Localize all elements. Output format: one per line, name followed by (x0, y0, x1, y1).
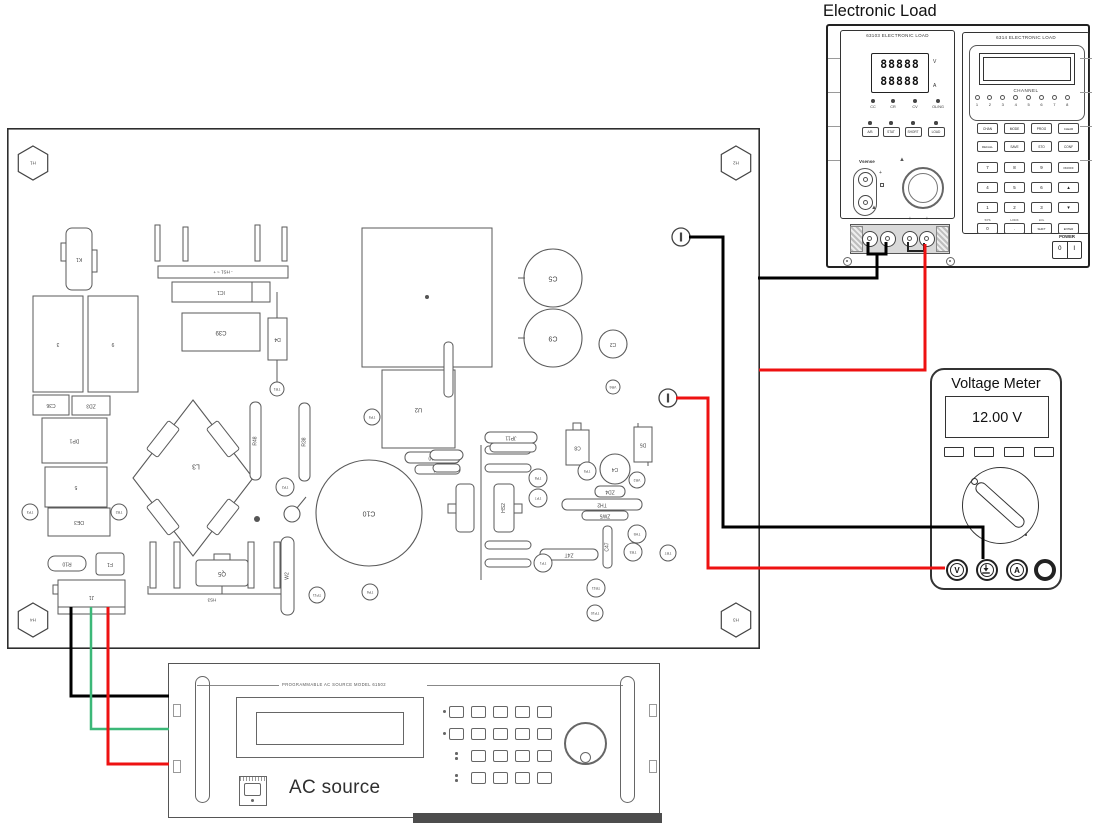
ac-connector-icon (239, 776, 267, 806)
load-terminal-3[interactable] (902, 231, 918, 247)
rack-notch (173, 760, 181, 773)
ac-indicator-dot (455, 779, 458, 782)
load-seven-seg-display: 88888 88888 (871, 53, 929, 93)
meter-jack-spare[interactable] (1034, 559, 1056, 581)
silkscreen-label: R38 (302, 437, 308, 446)
pcb-component (58, 607, 125, 614)
terminal-screw-icon (907, 236, 912, 241)
silkscreen-label: R10 (62, 561, 71, 567)
ac-key-0-0[interactable] (449, 706, 464, 718)
silkscreen-label: TP2 (282, 485, 288, 489)
module-63103-model: 63103 ELECTRONIC LOAD (841, 33, 954, 38)
shift-label: SYS (977, 218, 998, 222)
pcb-component (255, 225, 260, 261)
load-key-chan[interactable]: CHAN (977, 123, 998, 134)
load-btn-stat[interactable]: STAT (883, 127, 900, 137)
ac-source-label: AC source (289, 777, 380, 799)
meter-function-button-4[interactable] (1034, 447, 1054, 457)
load-key-[interactable]: ▲ (1058, 182, 1079, 193)
load-key-3[interactable]: 3 (1031, 202, 1052, 213)
silkscreen-label: C8 (574, 445, 581, 451)
mode-led-ol/ng (936, 99, 940, 103)
silkscreen-label: ZW5 (600, 513, 611, 519)
chassis-line (1080, 92, 1092, 93)
shift-label: LCL (1031, 218, 1052, 222)
pcb-component (448, 504, 456, 513)
silkscreen-label: D4 (274, 336, 281, 342)
ac-key-0-2[interactable] (493, 706, 508, 718)
silkscreen-label: TP9 (369, 415, 375, 419)
silkscreen-label: C2 (610, 341, 617, 347)
load-key-2[interactable]: 2 (1004, 202, 1025, 213)
load-key-0[interactable]: 0 (977, 223, 998, 234)
silkscreen-label: DE3 (74, 519, 84, 525)
load-power-switch[interactable]: 0 I (1052, 241, 1082, 259)
pcb-component (174, 542, 180, 588)
ac-key-3-1[interactable] (471, 772, 486, 784)
pcb-component (485, 559, 531, 567)
load-display-line2: 88888 (872, 73, 928, 90)
chassis-line (1080, 126, 1092, 127)
meter-function-button-1[interactable] (944, 447, 964, 457)
silkscreen-label: ZD4 (605, 489, 615, 495)
silkscreen-label: DP1 (69, 438, 79, 444)
ac-key-1-1[interactable] (471, 728, 486, 740)
ac-key-2-3[interactable] (515, 750, 530, 762)
load-btn-load[interactable]: LOAD (928, 127, 945, 137)
silkscreen-label: TR11 (592, 586, 600, 590)
silkscreen-label: TR7 (665, 551, 672, 555)
vsense-jack-minus[interactable] (858, 195, 873, 210)
jack-glyph: A (1014, 566, 1020, 575)
connector-inlet (244, 783, 261, 796)
pcb-component (485, 464, 531, 472)
silkscreen-label: C39 (215, 329, 227, 335)
ac-key-led (443, 732, 446, 735)
load-terminal-4[interactable] (919, 231, 935, 247)
ac-key-1-4[interactable] (537, 728, 552, 740)
silkscreen-label: TP10 (591, 611, 599, 615)
display-unit-amps: A (933, 83, 936, 89)
pcb-component (274, 542, 280, 588)
silkscreen-label: TP5 (584, 469, 590, 473)
vsense-jack-plus[interactable] (858, 172, 873, 187)
silkscreen-label: L3 (192, 463, 200, 470)
load-terminal-1[interactable] (862, 231, 878, 247)
terminal-screw-icon (867, 236, 872, 241)
silkscreen-label: JP11 (505, 435, 516, 441)
ac-indicator-dot (455, 757, 458, 760)
pcb-component (155, 225, 160, 261)
dial-index-dot (971, 478, 978, 485)
load-key-5[interactable]: 5 (1004, 182, 1025, 193)
shift-label: LOCK (1004, 218, 1025, 222)
terminal-block-tab (936, 226, 949, 252)
chassis-line (828, 58, 840, 59)
terminal-mark: − (883, 216, 893, 222)
jack-inner: V (950, 563, 964, 577)
ac-key-1-2[interactable] (493, 728, 508, 740)
ac-source: PROGRAMMABLE AC SOURCE MODEL 61502 AC so… (168, 663, 660, 818)
pcb-component (485, 541, 531, 549)
pcb-component (282, 227, 287, 261)
mode-led-label: CR (881, 105, 905, 109)
ac-key-led (443, 710, 446, 713)
pcb-component (53, 585, 58, 594)
load-key-prog[interactable]: PROG (1031, 123, 1052, 134)
load-rotary-knob[interactable] (902, 167, 944, 209)
connector-pin (251, 799, 254, 802)
jack-inner: A (1010, 563, 1024, 577)
silkscreen-label: C10 (362, 510, 375, 517)
pcb-component (514, 504, 522, 513)
silkscreen-label: C4 (612, 466, 619, 472)
meter-function-button-2[interactable] (974, 447, 994, 457)
silkscreen-label: TP6 (367, 590, 373, 594)
header-rule (427, 685, 623, 686)
ac-source-model-text: PROGRAMMABLE AC SOURCE MODEL 61502 (282, 682, 386, 687)
silkscreen-label: TR3 (630, 550, 637, 554)
terminal-mark: − (865, 216, 875, 222)
display-unit-volts: V (933, 59, 936, 65)
pcb-component (92, 250, 97, 272)
pcb-component (490, 443, 536, 452)
pcb-component (433, 464, 460, 472)
meter-range-dial[interactable] (962, 467, 1039, 544)
ac-indicator-dot (455, 774, 458, 777)
knob-inner (908, 173, 938, 203)
silkscreen-label: D5 (640, 442, 647, 448)
mode-led-label: CV (903, 105, 927, 109)
knob-dimple (580, 752, 591, 763)
electronic-load-title: Electronic Load (823, 2, 937, 21)
load-key-conf[interactable]: CONF (1058, 141, 1079, 152)
silkscreen-label: TH5 (634, 532, 641, 536)
silkscreen-label: IC1 (217, 289, 225, 295)
ac-indicator-dot (455, 752, 458, 755)
silkscreen-label: H3 (733, 618, 739, 623)
pcb-component (444, 342, 453, 397)
load-key-recall[interactable]: RECALL (977, 141, 998, 152)
ac-key-0-4[interactable] (537, 706, 552, 718)
silkscreen-label: U2 (414, 406, 422, 412)
electronic-load: 63103 ELECTRONIC LOAD 88888 88888 V A Vs… (826, 24, 1090, 268)
load-key-7[interactable]: 7 (977, 162, 998, 173)
silkscreen-label: C36 (46, 402, 55, 408)
terminal-screw-icon (885, 236, 890, 241)
button-led (868, 121, 872, 125)
silkscreen-label: TP8 (535, 476, 541, 480)
silkscreen-label: Z4T (565, 552, 574, 558)
load-display-line1: 88888 (872, 56, 928, 73)
power-off-position: 0 (1053, 242, 1068, 258)
load-key-6[interactable]: 6 (1031, 182, 1052, 193)
square-mark-icon (880, 183, 884, 187)
chassis-line (1080, 58, 1092, 59)
load-terminal-2[interactable] (880, 231, 896, 247)
mode-led-cv (913, 99, 917, 103)
pcb-component (456, 484, 474, 532)
meter-jack-v[interactable]: V (946, 559, 968, 581)
jack-inner (980, 563, 994, 577)
chassis-line (1080, 160, 1092, 161)
chassis-screw-icon (843, 257, 852, 266)
ac-key-2-4[interactable] (537, 750, 552, 762)
silkscreen-label: H1 (30, 161, 36, 166)
rack-handle[interactable] (620, 676, 635, 803)
silkscreen-label: TR2 (116, 510, 123, 514)
meter-jack-a[interactable]: A (1006, 559, 1028, 581)
silkscreen-label: K1 (76, 256, 82, 262)
vsense-label: Vsense (859, 159, 875, 164)
silkscreen-label: TP7 (535, 496, 541, 500)
load-key-1[interactable]: 1 (977, 202, 998, 213)
load-key-shift[interactable]: SHIFT (1031, 223, 1052, 234)
silkscreen-label: R48 (253, 436, 259, 445)
meter-jack-gnd[interactable] (976, 559, 998, 581)
silkscreen-label: HS2 (501, 503, 507, 513)
load-key-8[interactable]: 8 (1004, 162, 1025, 173)
ac-key-3-2[interactable] (493, 772, 508, 784)
ac-key-1-0[interactable] (449, 728, 464, 740)
meter-function-button-3[interactable] (1004, 447, 1024, 457)
pcb-component (183, 227, 188, 261)
silkscreen-label: 3 (56, 341, 59, 347)
silkscreen-label: TP3 (27, 510, 33, 514)
ac-key-2-2[interactable] (493, 750, 508, 762)
ac-key-1-3[interactable] (515, 728, 530, 740)
silkscreen-label: TP1 (540, 561, 546, 565)
load-key-sto[interactable]: STO (1031, 141, 1052, 152)
ac-key-0-1[interactable] (471, 706, 486, 718)
dial-rim-dot (1025, 534, 1028, 537)
ac-key-2-1[interactable] (471, 750, 486, 762)
load-btn-ab[interactable]: A/B (862, 127, 879, 137)
mode-led-cr (891, 99, 895, 103)
pcb-component (573, 423, 581, 430)
silkscreen-label: 9 (111, 341, 114, 347)
silkscreen-label: VR2 (634, 478, 641, 482)
pcb-component (248, 542, 254, 588)
silkscreen-label: ZD3 (86, 403, 96, 409)
pcb-dot (425, 295, 429, 299)
silkscreen-label: TP11 (313, 593, 321, 597)
diagram-canvas: H1H2H3H4K139C36ZD3DP15DE3TP3TR2R10F1J1- … (0, 0, 1100, 829)
silkscreen-label: - HS1 ~ + (213, 270, 233, 275)
voltage-meter-display: 12.00 V (945, 396, 1049, 438)
silkscreen-label: C5 (548, 275, 557, 282)
silkscreen-label: F1 (107, 561, 113, 567)
jack-glyph: V (954, 566, 959, 575)
rack-notch (649, 760, 657, 773)
terminal-mark: + (922, 216, 932, 222)
button-led (934, 121, 938, 125)
silkscreen-label: W2 (285, 572, 291, 580)
load-key-9[interactable]: 9 (1031, 162, 1052, 173)
mode-led-label: OL/NG (926, 105, 950, 109)
chassis-line (828, 92, 840, 93)
button-led (911, 121, 915, 125)
load-key-enter[interactable]: ENTER (1058, 223, 1079, 234)
terminal-mark: + (905, 216, 915, 222)
mode-led-cc (871, 99, 875, 103)
load-mainframe-6314: 6314 ELECTRONIC LOAD CHANNEL 12345678 CH… (962, 32, 1090, 234)
silkscreen-label: H2 (733, 161, 739, 166)
silkscreen-label: H4 (30, 618, 36, 623)
ac-lcd (256, 712, 404, 745)
pcb-component (430, 450, 463, 460)
silkscreen-label: HS3 (207, 598, 216, 603)
terminal-screw-icon (924, 236, 929, 241)
ac-key-3-4[interactable] (537, 772, 552, 784)
dial-pointer (972, 479, 1026, 529)
mainframe-keypad: CHANMODEPROGCLEARRECALLSAVESTOCONF789ON/… (963, 33, 1089, 233)
power-label: POWER (1050, 234, 1084, 239)
button-led (889, 121, 893, 125)
connector-hatch (240, 777, 266, 781)
ac-source-shadow-band (413, 813, 662, 823)
load-key-[interactable]: ▼ (1058, 202, 1079, 213)
pcb-component (61, 243, 66, 261)
jack-center (863, 200, 868, 205)
silkscreen-label: TR1 (274, 387, 281, 391)
rack-handle[interactable] (195, 676, 210, 803)
pcb-component (284, 506, 300, 522)
load-key-onoff[interactable]: ON/OFF (1058, 162, 1079, 173)
ground-icon (981, 564, 991, 574)
jack-center (863, 177, 868, 182)
ac-key-0-3[interactable] (515, 706, 530, 718)
silkscreen-label: C47 (605, 542, 611, 551)
chassis-screw-icon (946, 257, 955, 266)
silkscreen-label: Q5 (217, 570, 226, 576)
load-btn-short[interactable]: SHORT (905, 127, 922, 137)
rack-notch (173, 704, 181, 717)
load-key-[interactable]: . (1004, 223, 1025, 234)
silkscreen-label: TH2 (597, 502, 607, 508)
load-key-4[interactable]: 4 (977, 182, 998, 193)
load-key-clear[interactable]: CLEAR (1058, 123, 1079, 134)
pcb-component (150, 542, 156, 588)
voltage-meter-title: Voltage Meter (932, 376, 1060, 392)
load-key-save[interactable]: SAVE (1004, 141, 1025, 152)
load-module-63103: 63103 ELECTRONIC LOAD 88888 88888 V A Vs… (840, 30, 955, 219)
plus-mark: + (879, 170, 882, 176)
chassis-line (828, 126, 840, 127)
ac-rotary-knob[interactable] (564, 722, 607, 765)
pcb-dot (254, 516, 260, 522)
chassis-line (828, 160, 840, 161)
ac-key-3-3[interactable] (515, 772, 530, 784)
silkscreen-label: C9 (548, 335, 557, 342)
ac-display-bezel (236, 697, 424, 758)
silkscreen-label: J1 (89, 594, 95, 600)
silkscreen-label: VR6 (610, 385, 617, 389)
power-on-position: I (1068, 242, 1082, 258)
load-key-mode[interactable]: MODE (1004, 123, 1025, 134)
warning-icon: ▲ (899, 157, 905, 163)
rack-notch (649, 704, 657, 717)
silkscreen-label: 5 (74, 484, 77, 490)
voltage-meter: Voltage Meter 12.00 V VA (930, 368, 1062, 590)
